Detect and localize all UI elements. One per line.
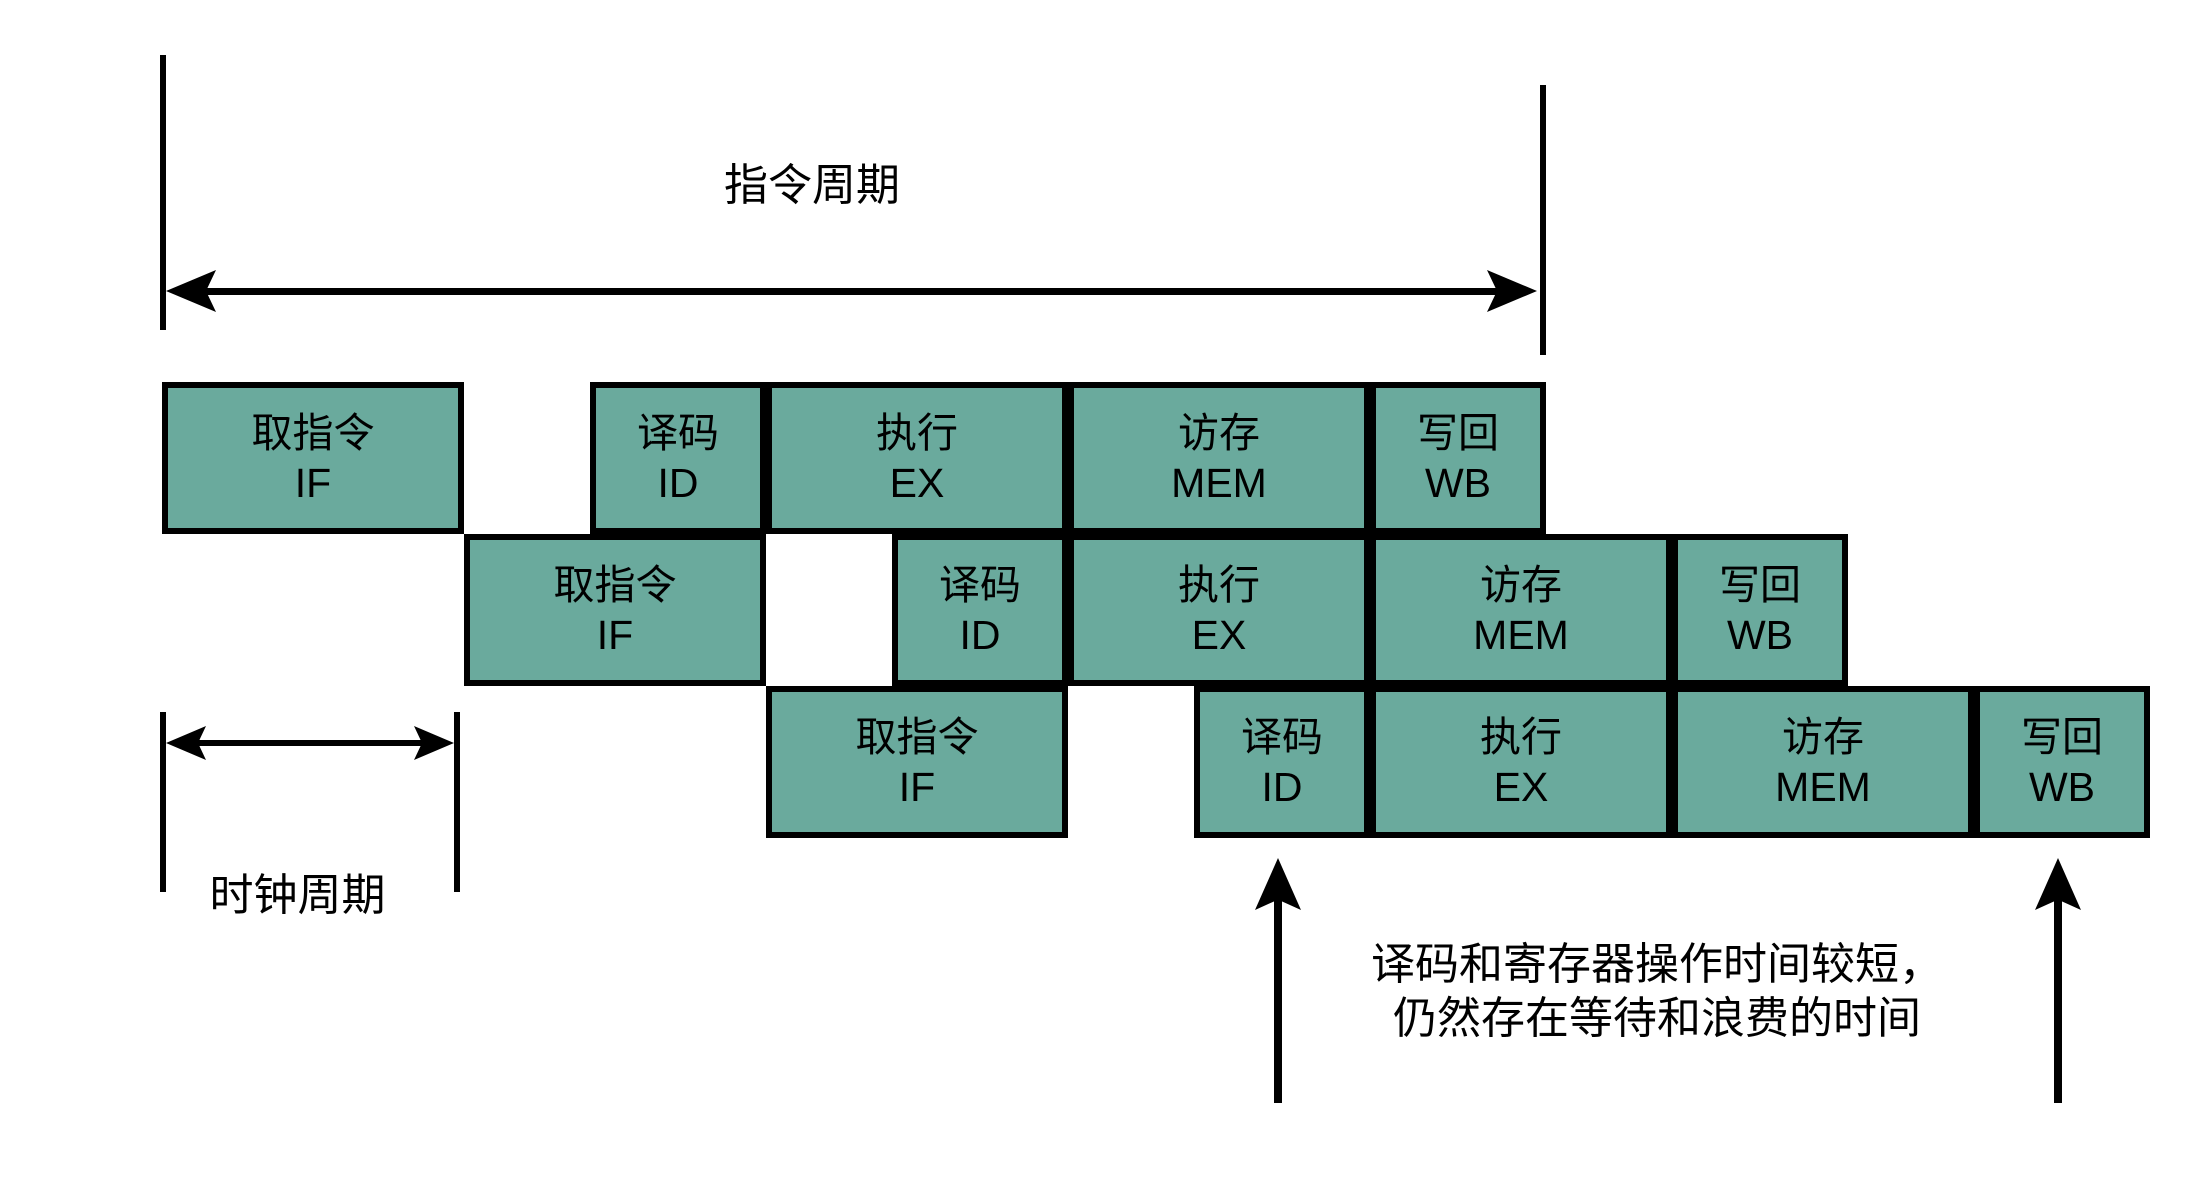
note-text: 译码和寄存器操作时间较短， 仍然存在等待和浪费的时间 [1327,938,1987,1045]
stage-label-zh: 译码 [939,560,1021,610]
stage-label-en: WB [1727,610,1793,660]
stage-label-zh: 译码 [1241,712,1323,762]
stage-instruction-2-wb: 写回WB [1672,534,1848,686]
stage-label-en: MEM [1775,762,1871,812]
stage-instruction-1-mem: 访存MEM [1068,382,1370,534]
stage-label-en: ID [658,458,699,508]
stage-instruction-2-mem: 访存MEM [1370,534,1672,686]
stage-label-zh: 执行 [1178,560,1260,610]
stage-label-en: IF [295,458,331,508]
stage-instruction-3-ex: 执行EX [1370,686,1672,838]
stage-label-en: EX [1494,762,1549,812]
stage-label-en: ID [960,610,1001,660]
stage-label-zh: 取指令 [856,712,979,762]
stage-instruction-2-ex: 执行EX [1068,534,1370,686]
clock-cycle-label: 时钟周期 [150,870,445,923]
clock-cycle-arrow-shaft [192,740,430,746]
clock-cycle-right-tick [454,712,460,892]
stage-label-zh: 写回 [1719,560,1801,610]
stage-label-en: EX [1192,610,1247,660]
stage-label-en: ID [1262,762,1303,812]
stage-instruction-3-id: 译码ID [1194,686,1370,838]
instruction-cycle-label: 指令周期 [612,160,1012,213]
instruction-cycle-right-tick [1540,85,1546,355]
stage-label-zh: 写回 [1417,408,1499,458]
note-line-1: 译码和寄存器操作时间较短， [1327,938,1987,992]
stage-instruction-2-if: 取指令IF [464,534,766,686]
stage-label-en: WB [1425,458,1491,508]
pipeline-diagram: 指令周期 取指令IF译码ID执行EX访存MEM写回WB取指令IF译码ID执行EX… [0,0,2203,1180]
stage-instruction-2-id: 译码ID [892,534,1068,686]
stage-label-zh: 访存 [1480,560,1562,610]
stage-label-zh: 执行 [876,408,958,458]
stage-label-en: IF [597,610,633,660]
stage-instruction-3-mem: 访存MEM [1672,686,1974,838]
stage-instruction-1-id: 译码ID [590,382,766,534]
stage-instruction-1-wb: 写回WB [1370,382,1546,534]
stage-label-zh: 访存 [1782,712,1864,762]
instruction-cycle-left-tick [160,55,166,330]
stage-label-zh: 取指令 [554,560,677,610]
stage-label-zh: 取指令 [252,408,375,458]
stage-instruction-1-if: 取指令IF [162,382,464,534]
instruction-cycle-arrow-shaft [195,288,1510,295]
clock-cycle-left-tick [160,712,166,892]
stage-label-en: MEM [1171,458,1267,508]
stage-label-en: WB [2029,762,2095,812]
stage-label-en: IF [899,762,935,812]
stage-label-zh: 访存 [1178,408,1260,458]
stage-label-zh: 执行 [1480,712,1562,762]
stage-label-zh: 写回 [2021,712,2103,762]
stage-label-en: EX [890,458,945,508]
pointer-arrow-shaft [1274,898,1282,1103]
stage-instruction-3-if: 取指令IF [766,686,1068,838]
stage-label-en: MEM [1473,610,1569,660]
stage-label-zh: 译码 [637,408,719,458]
note-line-2: 仍然存在等待和浪费的时间 [1327,992,1987,1046]
pointer-arrow-shaft [2054,898,2062,1103]
stage-instruction-1-ex: 执行EX [766,382,1068,534]
stage-instruction-3-wb: 写回WB [1974,686,2150,838]
